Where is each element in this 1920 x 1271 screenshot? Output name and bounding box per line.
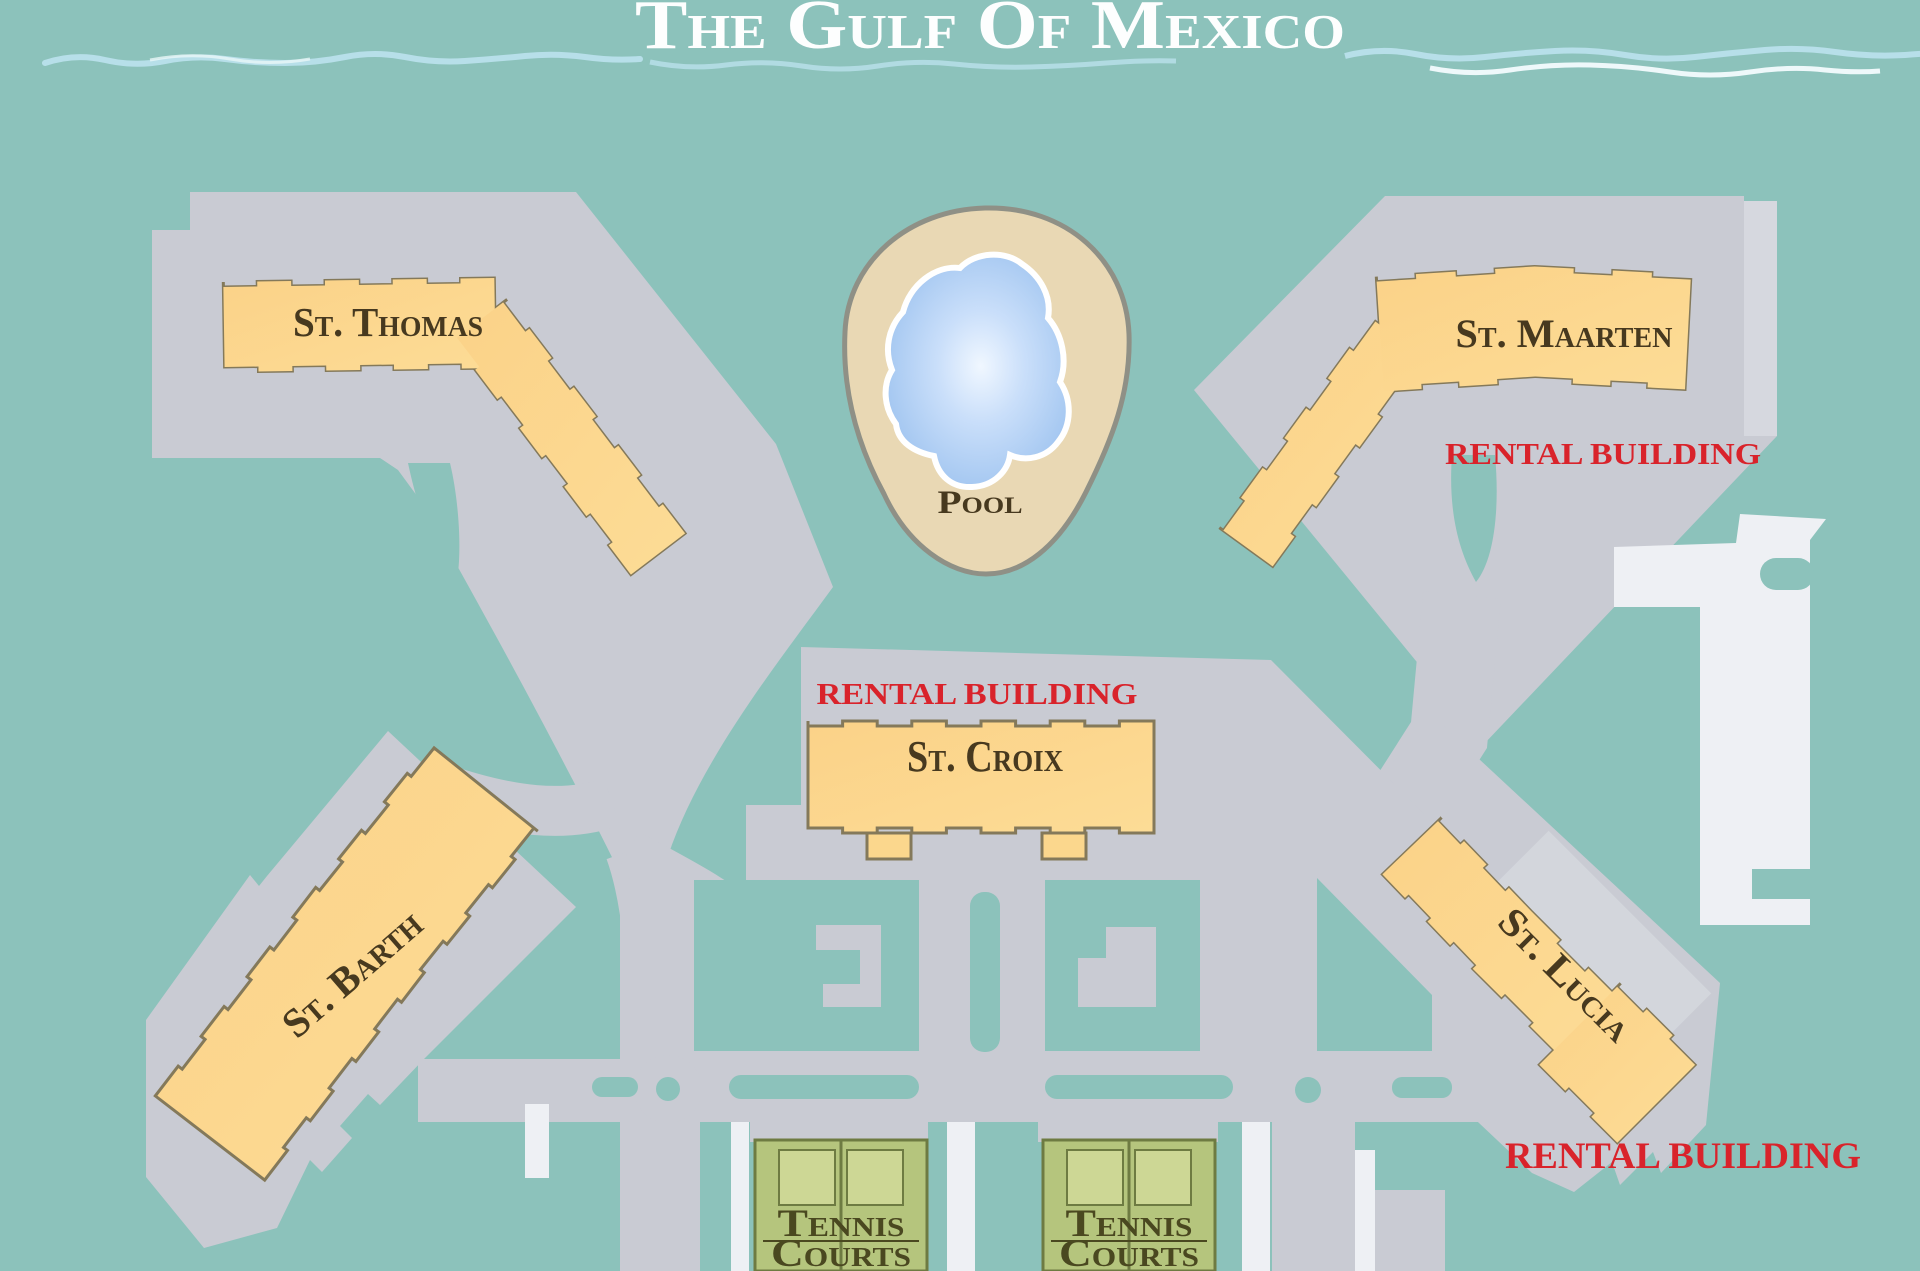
svg-text:RENTAL BUILDING: RENTAL BUILDING	[817, 676, 1138, 711]
svg-text:St. Maarten: St. Maarten	[1456, 311, 1673, 356]
svg-text:St. Croix: St. Croix	[907, 732, 1064, 781]
svg-text:St. Thomas: St. Thomas	[293, 299, 483, 345]
svg-text:Pool: Pool	[938, 485, 1023, 521]
svg-text:The Gulf Of Mexico: The Gulf Of Mexico	[635, 0, 1345, 64]
svg-text:RENTAL BUILDING: RENTAL BUILDING	[1505, 1136, 1861, 1177]
svg-text:Courts: Courts	[771, 1232, 911, 1271]
svg-text:Courts: Courts	[1059, 1232, 1199, 1271]
svg-text:RENTAL BUILDING: RENTAL BUILDING	[1445, 436, 1761, 471]
